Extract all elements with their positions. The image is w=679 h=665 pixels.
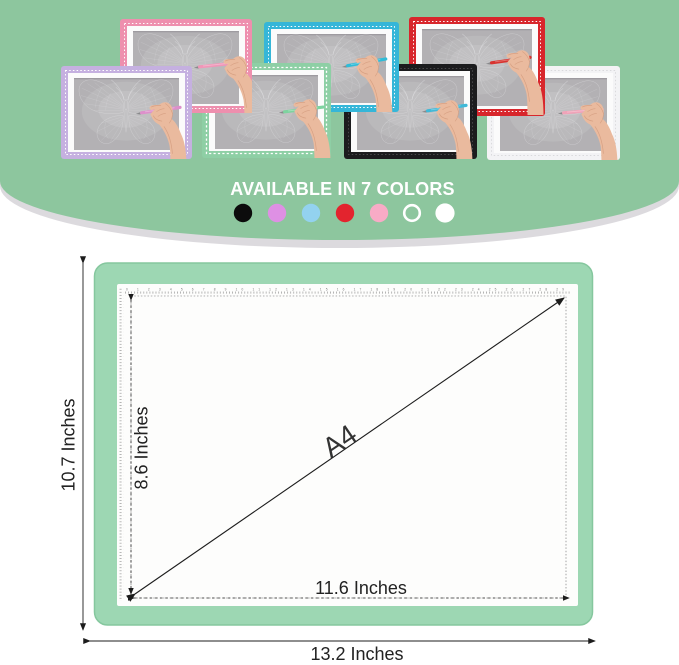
- svg-text:13.2 Inches: 13.2 Inches: [310, 644, 403, 664]
- svg-text:8.6 Inches: 8.6 Inches: [132, 406, 152, 489]
- svg-text:11.6 Inches: 11.6 Inches: [315, 578, 407, 598]
- svg-text:10.7 Inches: 10.7 Inches: [59, 398, 79, 491]
